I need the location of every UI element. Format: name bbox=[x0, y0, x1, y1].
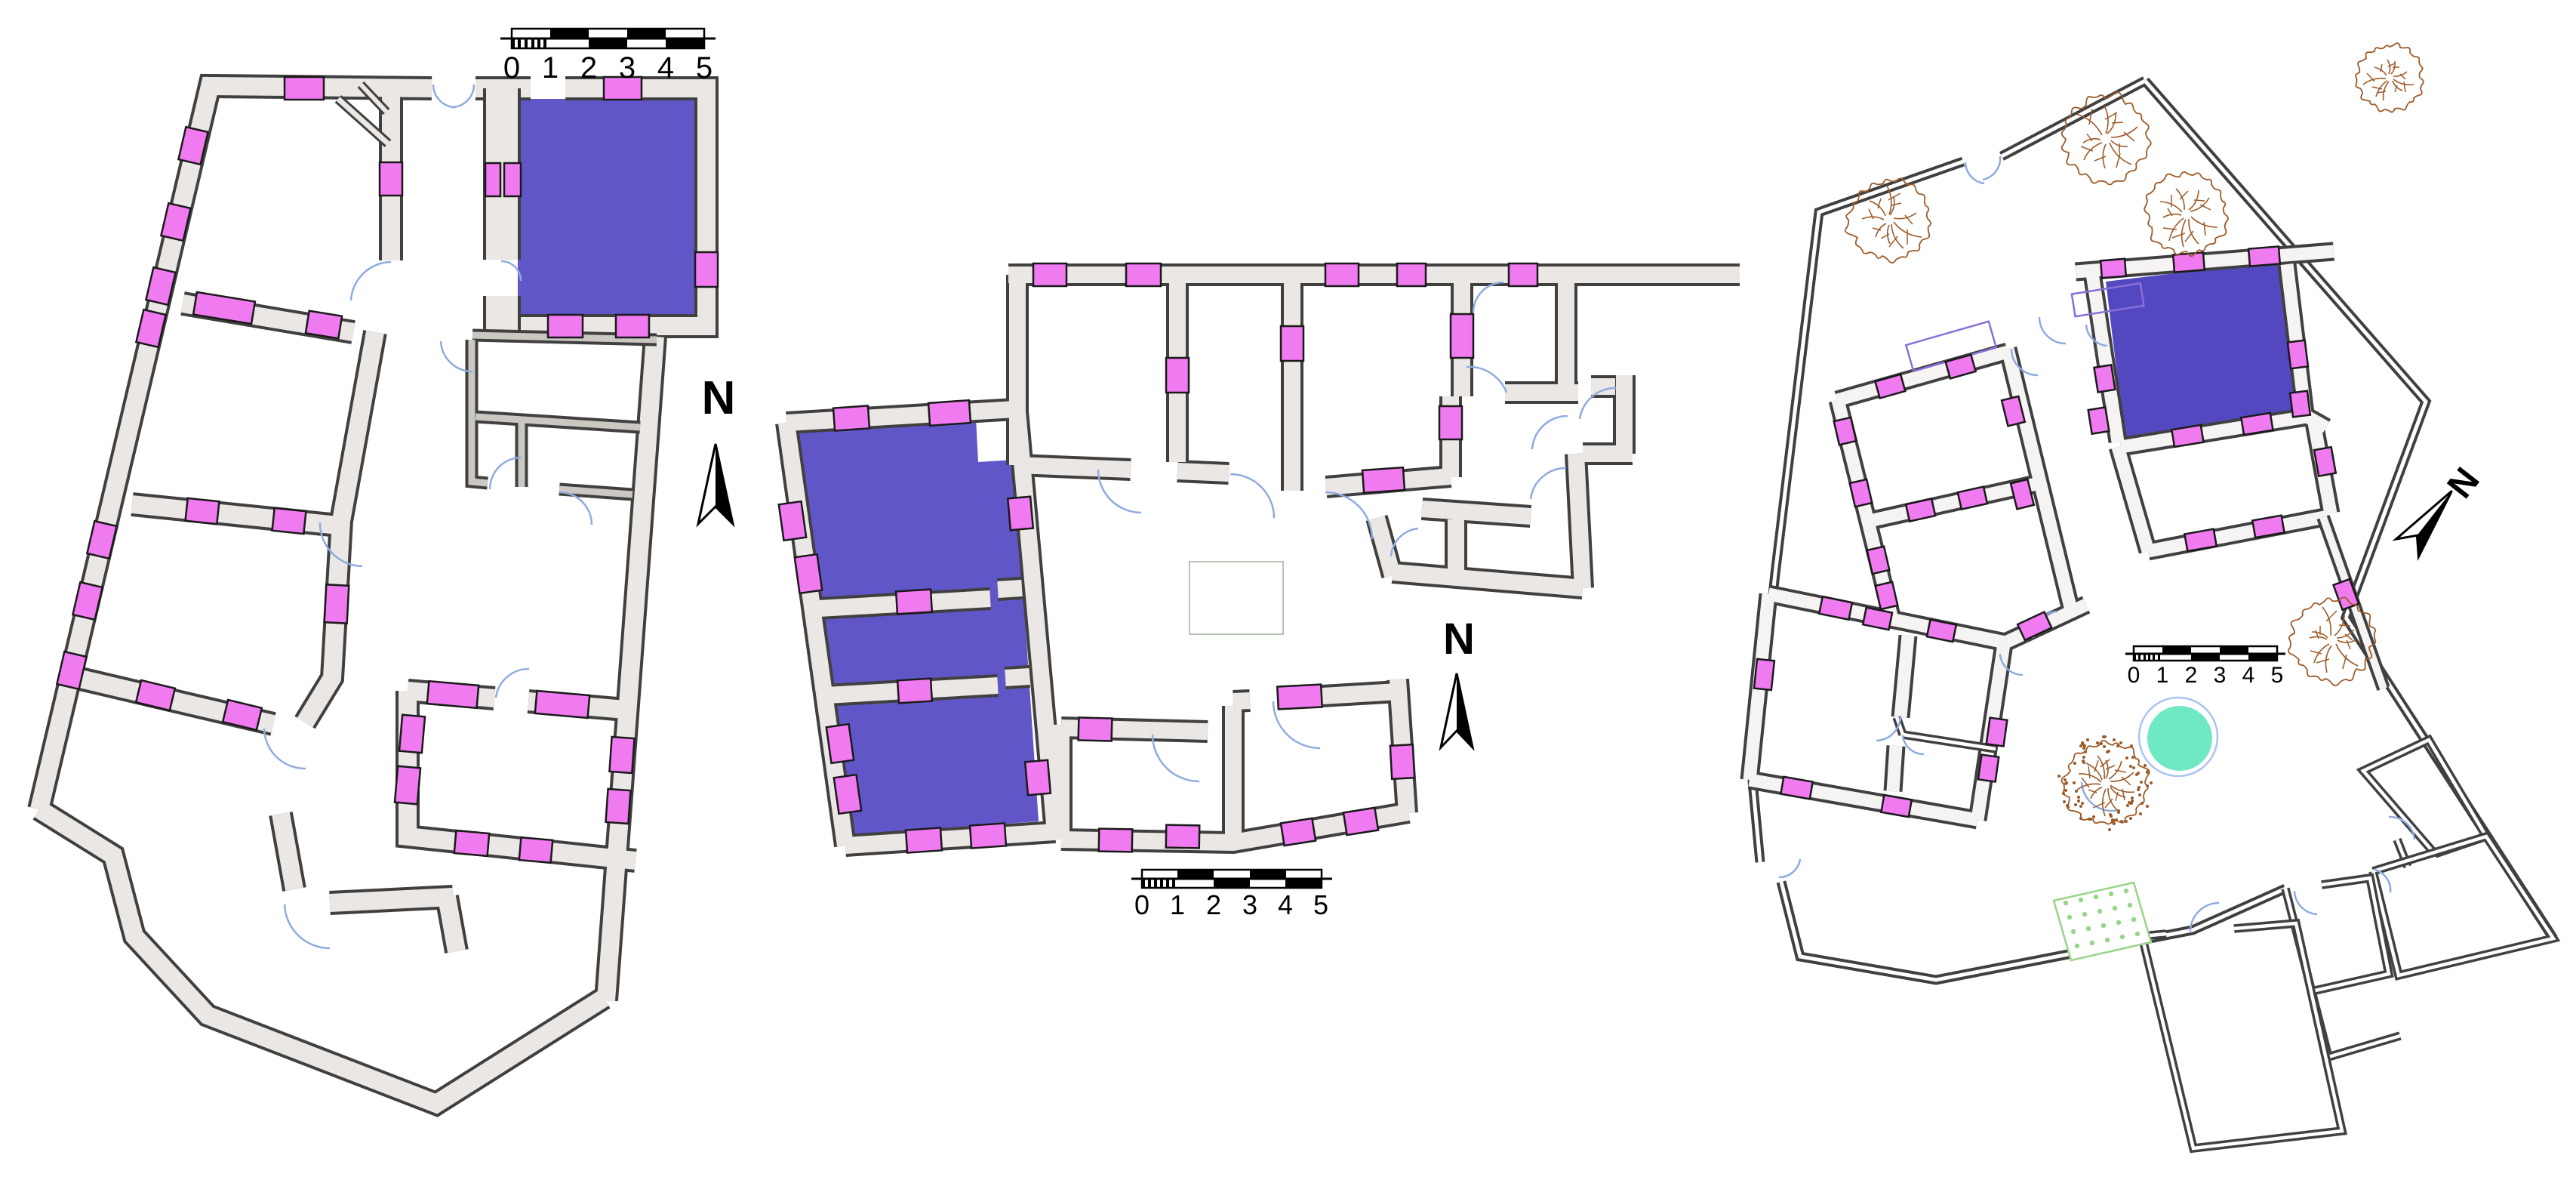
svg-text:2: 2 bbox=[1206, 889, 1221, 920]
svg-text:3: 3 bbox=[619, 51, 636, 85]
svg-text:5: 5 bbox=[2271, 663, 2284, 688]
svg-text:4: 4 bbox=[2242, 663, 2255, 688]
svg-text:0: 0 bbox=[503, 51, 520, 85]
svg-text:N: N bbox=[1443, 615, 1475, 664]
svg-text:5: 5 bbox=[696, 51, 712, 85]
svg-text:0: 0 bbox=[1134, 889, 1150, 920]
svg-text:1: 1 bbox=[2156, 663, 2169, 688]
svg-text:3: 3 bbox=[1242, 889, 1257, 920]
svg-text:4: 4 bbox=[657, 51, 674, 85]
svg-text:1: 1 bbox=[1170, 889, 1185, 920]
svg-text:4: 4 bbox=[1278, 889, 1293, 920]
svg-text:2: 2 bbox=[2185, 663, 2198, 688]
svg-text:N: N bbox=[702, 372, 736, 424]
svg-text:2: 2 bbox=[580, 51, 597, 85]
svg-text:0: 0 bbox=[2128, 663, 2141, 688]
svg-text:1: 1 bbox=[542, 51, 559, 85]
svg-text:3: 3 bbox=[2214, 663, 2227, 688]
svg-text:5: 5 bbox=[1313, 889, 1328, 920]
